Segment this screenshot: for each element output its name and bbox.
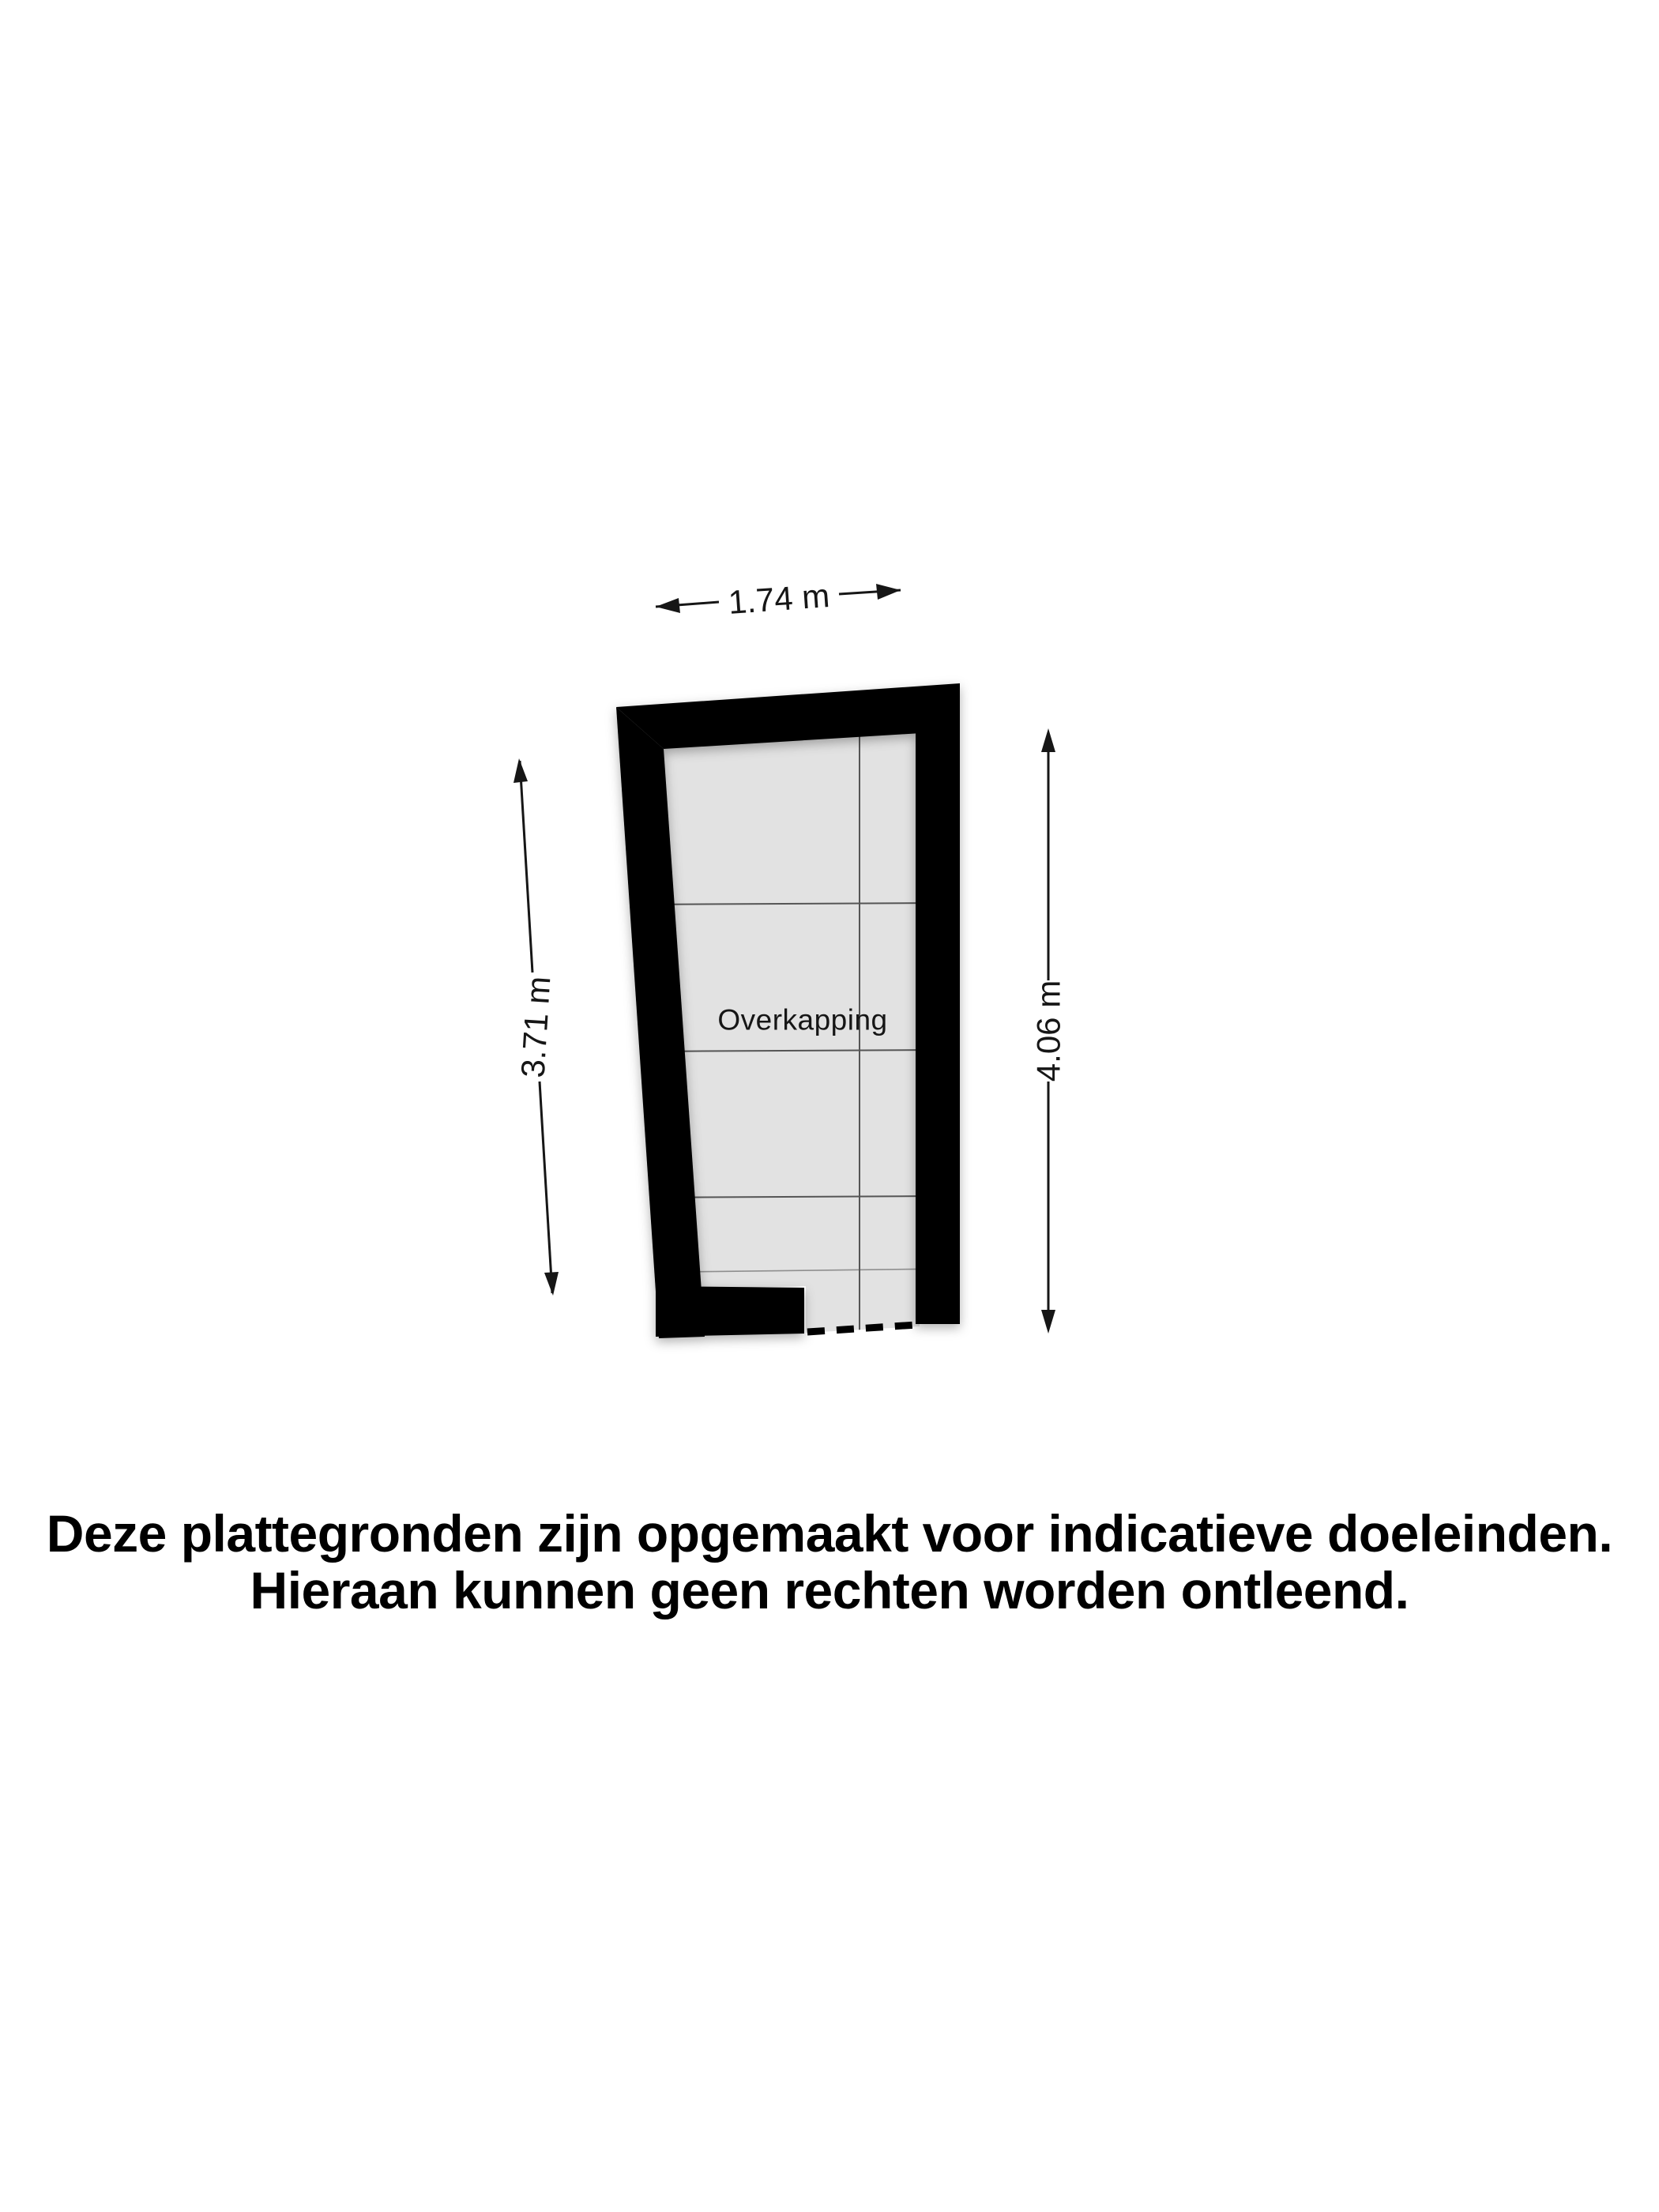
- disclaimer-line-1: Deze plattegronden zijn opgemaakt voor i…: [0, 1505, 1659, 1562]
- floorplan-drawing: Overkapping 1.74 m 3.71 m: [0, 0, 1659, 2212]
- disclaimer-line-2: Hieraan kunnen geen rechten worden ontle…: [0, 1562, 1659, 1619]
- wall-right: [916, 703, 960, 1324]
- arrowhead-left-icon: [656, 598, 680, 613]
- arrowhead-right-icon: [876, 584, 901, 600]
- dimension-top: 1.74 m: [656, 577, 901, 621]
- dimension-top-label: 1.74 m: [727, 577, 830, 621]
- arrowhead-up-icon: [1041, 728, 1055, 752]
- wall-bottom-stub: [656, 1286, 804, 1337]
- dimension-left-line-bottom: [540, 1082, 552, 1293]
- dimension-left-line-top: [520, 761, 532, 972]
- disclaimer: Deze plattegronden zijn opgemaakt voor i…: [0, 1505, 1659, 1619]
- dimension-left: 3.71 m: [513, 758, 559, 1296]
- room-label: Overkapping: [717, 1004, 887, 1036]
- dimension-right-label: 4.06 m: [1030, 980, 1067, 1082]
- dimension-right: 4.06 m: [1030, 728, 1067, 1334]
- dimension-left-label: 3.71 m: [514, 975, 558, 1078]
- arrowhead-down-icon: [1041, 1310, 1055, 1334]
- floorplan-page: Overkapping 1.74 m 3.71 m: [0, 0, 1659, 2212]
